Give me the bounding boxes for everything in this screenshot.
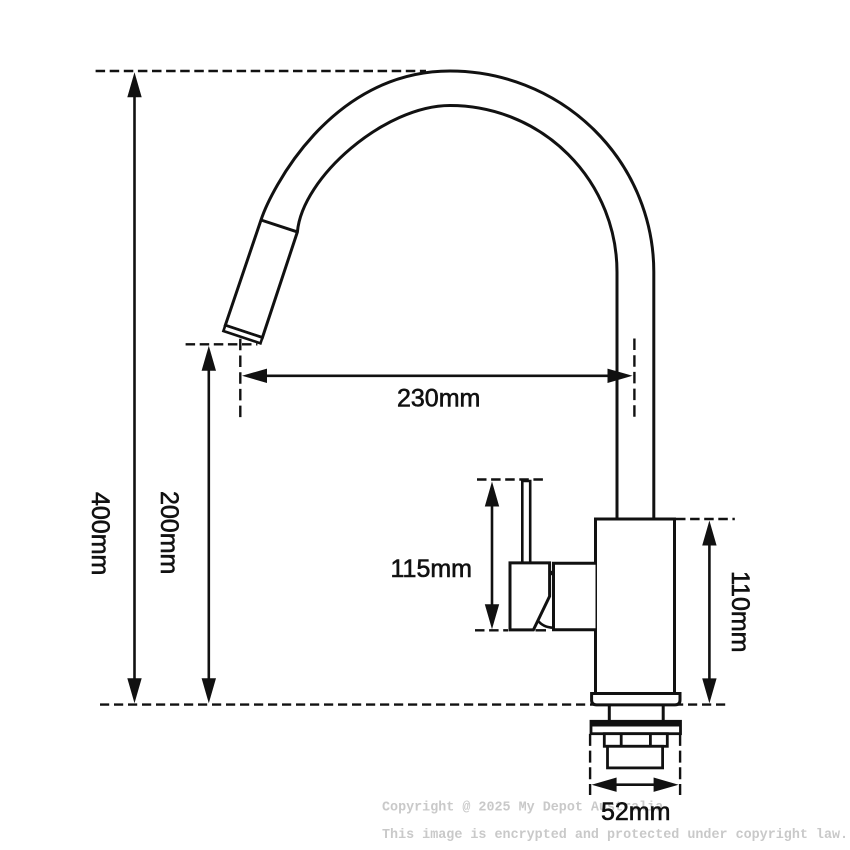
svg-text:110mm: 110mm	[726, 571, 754, 653]
svg-text:52mm: 52mm	[601, 798, 670, 826]
svg-text:This image is encrypted and pr: This image is encrypted and protected un…	[382, 828, 848, 843]
svg-text:400mm: 400mm	[86, 492, 114, 575]
svg-text:200mm: 200mm	[155, 491, 183, 574]
svg-text:230mm: 230mm	[397, 385, 480, 413]
svg-text:115mm: 115mm	[391, 555, 473, 583]
